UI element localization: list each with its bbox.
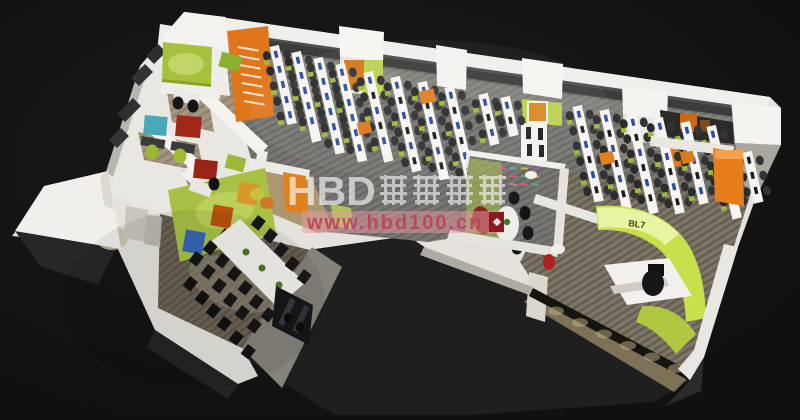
svg-text:www.hbd100.cn: www.hbd100.cn <box>306 212 483 234</box>
svg-text:HBD: HBD <box>287 168 376 214</box>
